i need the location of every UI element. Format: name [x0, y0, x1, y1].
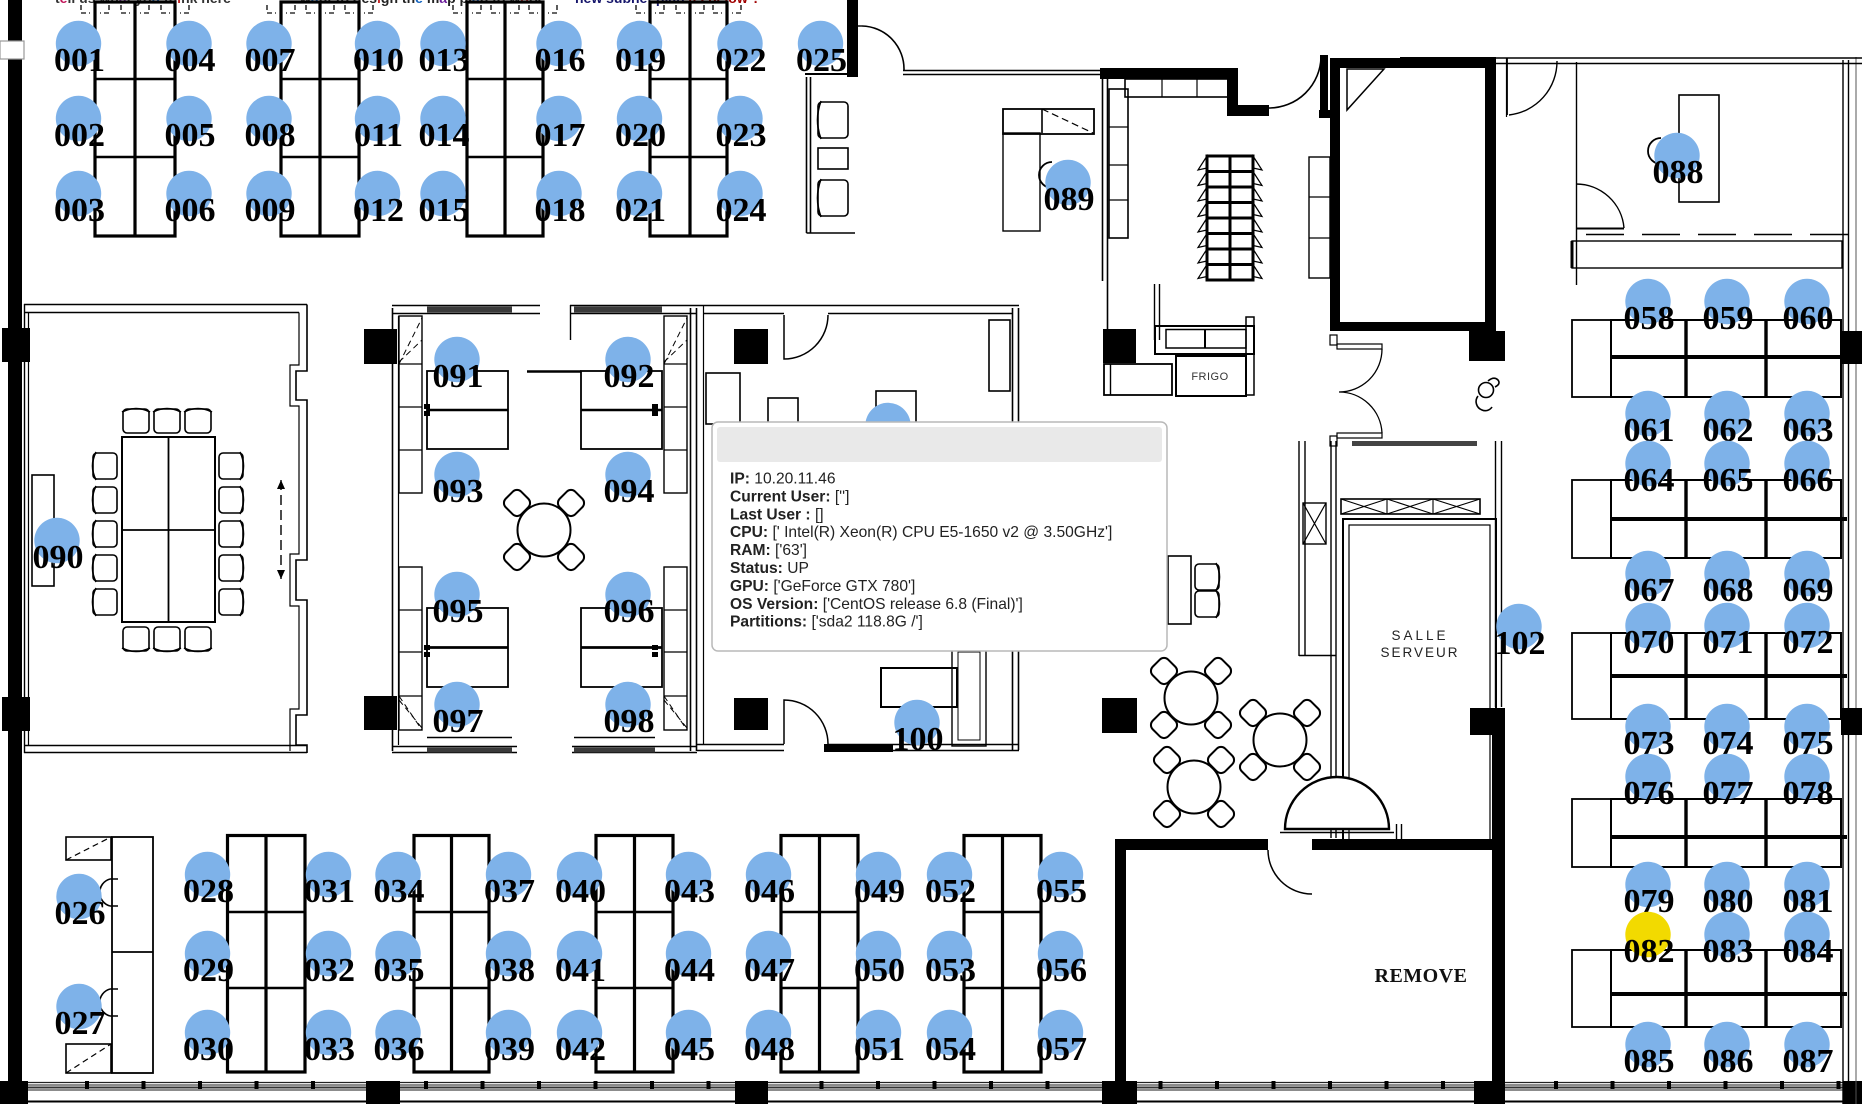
svg-text:039: 039 [484, 1031, 535, 1068]
svg-text:095: 095 [433, 593, 484, 630]
svg-text:042: 042 [555, 1031, 606, 1068]
svg-text:044: 044 [664, 952, 715, 989]
svg-text:030: 030 [183, 1031, 234, 1068]
svg-text:008: 008 [245, 117, 296, 154]
svg-text:019: 019 [615, 42, 666, 79]
svg-text:OS Version: ['CentOS release 6: OS Version: ['CentOS release 6.8 (Final)… [730, 596, 1023, 613]
svg-text:040: 040 [555, 873, 606, 910]
svg-text:Status: UP: Status: UP [730, 560, 809, 577]
svg-text:020: 020 [615, 117, 666, 154]
svg-text:037: 037 [484, 873, 535, 910]
svg-text:028: 028 [183, 873, 234, 910]
svg-text:093: 093 [433, 473, 484, 510]
svg-text:GPU: ['GeForce GTX 780']: GPU: ['GeForce GTX 780'] [730, 578, 915, 595]
svg-text:045: 045 [664, 1031, 715, 1068]
svg-text:058: 058 [1624, 300, 1675, 337]
svg-text:038: 038 [484, 952, 535, 989]
svg-text:013: 013 [419, 42, 470, 79]
svg-text:016: 016 [535, 42, 586, 79]
svg-text:REMOVE: REMOVE [1375, 965, 1468, 987]
svg-text:100: 100 [893, 721, 944, 758]
svg-text:010: 010 [353, 42, 404, 79]
svg-text:001: 001 [54, 42, 105, 79]
svg-text:076: 076 [1624, 775, 1675, 812]
svg-text:049: 049 [854, 873, 905, 910]
svg-text:022: 022 [716, 42, 767, 79]
svg-text:053: 053 [925, 952, 976, 989]
svg-text:031: 031 [304, 873, 355, 910]
svg-text:SERVEUR: SERVEUR [1380, 645, 1459, 660]
svg-text:087: 087 [1783, 1043, 1834, 1080]
svg-text:082: 082 [1624, 933, 1675, 970]
svg-text:RAM: ['63']: RAM: ['63'] [730, 542, 807, 559]
svg-text:003: 003 [54, 192, 105, 229]
svg-text:054: 054 [925, 1031, 976, 1068]
svg-text:055: 055 [1036, 873, 1087, 910]
svg-text:084: 084 [1783, 933, 1834, 970]
svg-text:077: 077 [1703, 775, 1754, 812]
svg-text:IP: 10.20.11.46: IP: 10.20.11.46 [730, 471, 836, 488]
svg-text:035: 035 [374, 952, 425, 989]
svg-text:036: 036 [374, 1031, 425, 1068]
svg-text:021: 021 [615, 192, 666, 229]
svg-text:071: 071 [1703, 624, 1754, 661]
svg-text:047: 047 [744, 952, 795, 989]
svg-text:070: 070 [1624, 624, 1675, 661]
svg-text:017: 017 [535, 117, 586, 154]
svg-text:048: 048 [744, 1031, 795, 1068]
svg-text:085: 085 [1624, 1043, 1675, 1080]
svg-text:025: 025 [796, 42, 847, 79]
svg-text:059: 059 [1703, 300, 1754, 337]
svg-text:011: 011 [354, 117, 403, 154]
svg-text:014: 014 [419, 117, 470, 154]
svg-text:046: 046 [744, 873, 795, 910]
svg-text:034: 034 [374, 873, 425, 910]
svg-text:004: 004 [165, 42, 216, 79]
svg-text:096: 096 [604, 593, 655, 630]
svg-text:007: 007 [245, 42, 296, 79]
svg-text:033: 033 [304, 1031, 355, 1068]
svg-text:065: 065 [1703, 462, 1754, 499]
svg-text:009: 009 [245, 192, 296, 229]
svg-text:005: 005 [165, 117, 216, 154]
svg-text:Current User: ['']: Current User: [''] [730, 488, 849, 505]
svg-text:043: 043 [664, 873, 715, 910]
svg-text:051: 051 [854, 1031, 905, 1068]
svg-text:032: 032 [304, 952, 355, 989]
svg-text:088: 088 [1653, 154, 1704, 191]
svg-text:060: 060 [1783, 300, 1834, 337]
svg-text:083: 083 [1703, 933, 1754, 970]
svg-text:Partitions: ['sda2 118.8G /']: Partitions: ['sda2 118.8G /'] [730, 614, 923, 631]
svg-text:057: 057 [1036, 1031, 1087, 1068]
svg-text:027: 027 [55, 1005, 106, 1042]
svg-text:094: 094 [604, 473, 655, 510]
svg-text:066: 066 [1783, 462, 1834, 499]
svg-text:041: 041 [555, 952, 606, 989]
svg-text:015: 015 [419, 192, 470, 229]
svg-text:102: 102 [1495, 625, 1546, 662]
svg-text:029: 029 [183, 952, 234, 989]
svg-text:097: 097 [433, 703, 484, 740]
svg-text:086: 086 [1703, 1043, 1754, 1080]
svg-text:050: 050 [854, 952, 905, 989]
svg-text:006: 006 [165, 192, 216, 229]
svg-text:012: 012 [353, 192, 404, 229]
svg-text:089: 089 [1044, 181, 1095, 218]
svg-text:052: 052 [925, 873, 976, 910]
svg-text:023: 023 [716, 117, 767, 154]
svg-text:092: 092 [604, 358, 655, 395]
svg-text:078: 078 [1783, 775, 1834, 812]
svg-text:FRIGO: FRIGO [1191, 371, 1228, 383]
svg-text:002: 002 [54, 117, 105, 154]
svg-text:SALLE: SALLE [1391, 628, 1448, 643]
svg-text:098: 098 [604, 703, 655, 740]
svg-text:CPU: [' Intel(R) Xeon(R) CPU E: CPU: [' Intel(R) Xeon(R) CPU E5-1650 v2 … [730, 524, 1112, 541]
svg-text:Last User : []: Last User : [] [730, 506, 824, 523]
svg-text:090: 090 [33, 539, 84, 576]
svg-text:056: 056 [1036, 952, 1087, 989]
svg-text:064: 064 [1624, 462, 1675, 499]
svg-text:018: 018 [535, 192, 586, 229]
svg-text:024: 024 [716, 192, 767, 229]
svg-text:091: 091 [433, 358, 484, 395]
svg-text:072: 072 [1783, 624, 1834, 661]
svg-text:026: 026 [55, 895, 106, 932]
